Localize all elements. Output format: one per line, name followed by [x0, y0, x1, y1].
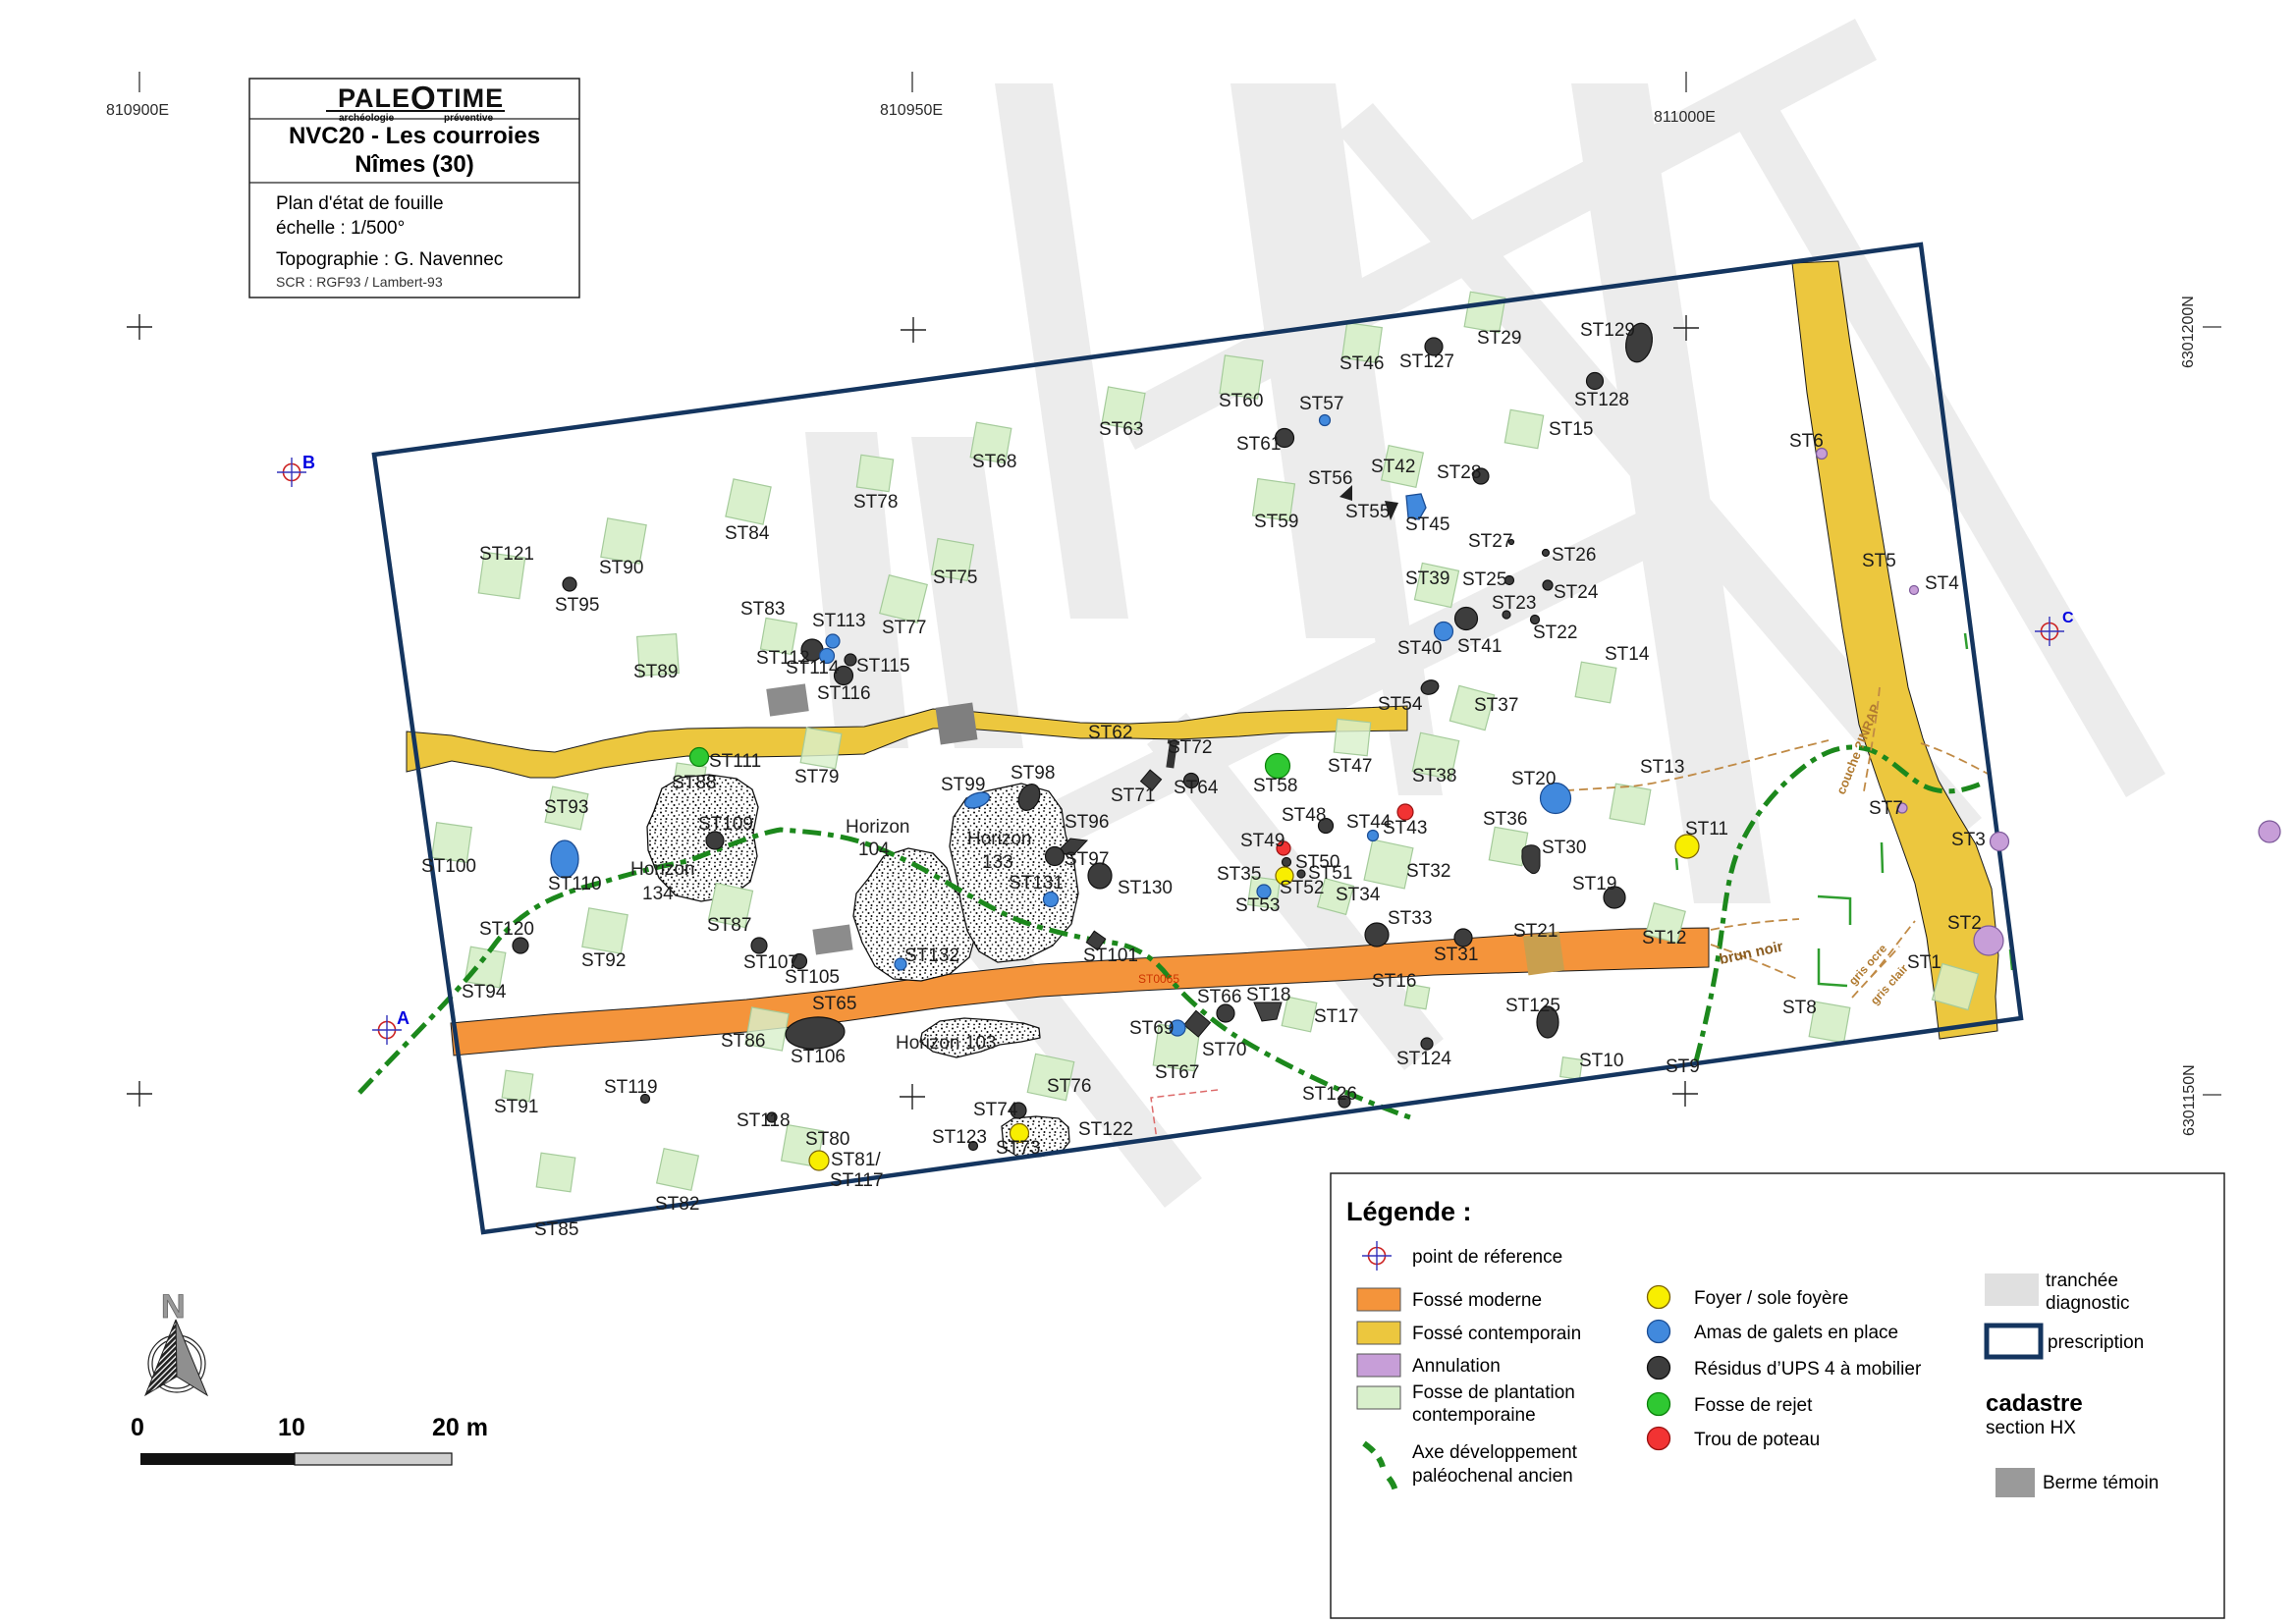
svg-text:ST9: ST9 [1666, 1056, 1700, 1077]
svg-text:ST86: ST86 [721, 1031, 765, 1052]
svg-text:ST25: ST25 [1462, 569, 1506, 590]
svg-text:Topographie : G. Navennec: Topographie : G. Navennec [276, 249, 503, 270]
svg-text:paléochenal ancien: paléochenal ancien [1412, 1466, 1573, 1487]
svg-text:ST46: ST46 [1339, 353, 1384, 374]
svg-text:ST116: ST116 [817, 683, 871, 704]
svg-text:ST30: ST30 [1542, 838, 1586, 858]
svg-text:ST29: ST29 [1477, 328, 1521, 349]
svg-text:ST45: ST45 [1405, 514, 1449, 535]
svg-text:ST113: ST113 [812, 611, 866, 631]
svg-text:Fosse de rejet: Fosse de rejet [1694, 1395, 1813, 1416]
svg-text:Horizon: Horizon [630, 859, 694, 880]
svg-text:ST92: ST92 [581, 950, 626, 971]
svg-text:Annulation: Annulation [1412, 1356, 1501, 1377]
svg-text:ST13: ST13 [1640, 757, 1684, 778]
svg-text:ST129: ST129 [1580, 320, 1635, 341]
svg-text:ST26: ST26 [1552, 545, 1596, 566]
svg-text:ST115: ST115 [856, 656, 910, 677]
svg-text:ST10: ST10 [1579, 1051, 1623, 1071]
svg-text:ST15: ST15 [1549, 419, 1593, 440]
svg-text:tranchée: tranchée [2046, 1271, 2118, 1291]
svg-text:10: 10 [278, 1414, 305, 1441]
svg-text:section HX: section HX [1986, 1418, 2076, 1438]
svg-text:ST42: ST42 [1371, 457, 1415, 477]
svg-text:ST69: ST69 [1129, 1018, 1174, 1039]
svg-text:Amas de galets en place: Amas de galets en place [1694, 1323, 1898, 1343]
svg-text:ST120: ST120 [479, 919, 534, 940]
svg-text:ST122: ST122 [1078, 1119, 1133, 1140]
svg-text:ST52: ST52 [1280, 878, 1324, 898]
svg-text:ST118: ST118 [737, 1110, 791, 1131]
svg-text:Foyer / sole foyère: Foyer / sole foyère [1694, 1288, 1848, 1309]
svg-text:ST27: ST27 [1468, 531, 1512, 552]
svg-text:ST80: ST80 [805, 1129, 849, 1150]
svg-text:ST4: ST4 [1925, 573, 1959, 594]
svg-text:ST117: ST117 [830, 1170, 884, 1191]
svg-text:ST84: ST84 [725, 523, 770, 544]
svg-text:ST94: ST94 [462, 982, 507, 1002]
svg-text:échelle : 1/500°: échelle : 1/500° [276, 218, 405, 239]
svg-text:ST105: ST105 [785, 967, 840, 988]
svg-text:ST60: ST60 [1219, 391, 1263, 411]
svg-text:ST2: ST2 [1947, 913, 1982, 934]
svg-text:ST23: ST23 [1492, 593, 1536, 614]
svg-text:ST106: ST106 [791, 1047, 846, 1067]
svg-text:ST76: ST76 [1047, 1076, 1091, 1097]
svg-text:ST37: ST37 [1474, 695, 1518, 716]
svg-text:ST17: ST17 [1314, 1006, 1358, 1027]
svg-text:ST109: ST109 [698, 814, 753, 835]
svg-text:A: A [397, 1008, 410, 1028]
svg-text:ST64: ST64 [1174, 778, 1219, 798]
svg-text:ST47: ST47 [1328, 756, 1372, 777]
svg-text:Fosse de plantation: Fosse de plantation [1412, 1382, 1575, 1403]
svg-text:ST79: ST79 [794, 767, 839, 787]
svg-text:6301150N: 6301150N [2181, 1064, 2198, 1136]
svg-text:ST35: ST35 [1217, 864, 1261, 885]
svg-text:prescription: prescription [2048, 1332, 2144, 1353]
svg-text:6301200N: 6301200N [2180, 296, 2197, 368]
svg-text:Berme témoin: Berme témoin [2043, 1473, 2159, 1493]
svg-text:ST66: ST66 [1197, 987, 1241, 1007]
svg-text:ST71: ST71 [1111, 785, 1155, 806]
svg-text:Résidus d’UPS 4 à mobilier: Résidus d’UPS 4 à mobilier [1694, 1359, 1922, 1380]
svg-text:ST91: ST91 [494, 1097, 538, 1117]
svg-text:811000E: 811000E [1654, 109, 1716, 126]
svg-text:ST12: ST12 [1642, 928, 1686, 948]
svg-text:Horizon: Horizon [967, 829, 1031, 849]
svg-text:ST31: ST31 [1434, 945, 1478, 965]
svg-text:Trou de poteau: Trou de poteau [1694, 1430, 1820, 1450]
svg-text:0: 0 [131, 1414, 144, 1441]
svg-text:ST130: ST130 [1118, 878, 1173, 898]
svg-text:ST95: ST95 [555, 595, 599, 616]
svg-text:Horizon 103: Horizon 103 [896, 1033, 996, 1054]
svg-text:810900E: 810900E [106, 102, 169, 119]
svg-text:ST48: ST48 [1282, 805, 1326, 826]
svg-text:ST83: ST83 [740, 599, 785, 620]
svg-text:ST67: ST67 [1155, 1062, 1199, 1083]
svg-text:ST6: ST6 [1789, 431, 1824, 452]
svg-text:ST90: ST90 [599, 558, 643, 578]
svg-text:ST38: ST38 [1412, 766, 1456, 786]
svg-text:B: B [302, 453, 315, 472]
svg-text:ST40: ST40 [1397, 638, 1442, 659]
svg-text:ST1: ST1 [1907, 952, 1941, 973]
svg-text:ST33: ST33 [1388, 908, 1432, 929]
svg-text:Axe développement: Axe développement [1412, 1442, 1578, 1463]
svg-text:cadastre: cadastre [1986, 1390, 2083, 1417]
svg-text:ST39: ST39 [1405, 568, 1449, 589]
svg-text:ST96: ST96 [1065, 812, 1109, 833]
svg-text:ST131: ST131 [1009, 873, 1064, 893]
svg-text:ST59: ST59 [1254, 512, 1298, 532]
svg-text:ST56: ST56 [1308, 468, 1352, 489]
svg-text:ST0065: ST0065 [1138, 972, 1179, 986]
svg-text:ST49: ST49 [1240, 831, 1285, 851]
svg-text:ST61: ST61 [1236, 434, 1281, 455]
svg-text:104: 104 [858, 839, 890, 860]
svg-text:ST32: ST32 [1406, 861, 1450, 882]
svg-text:ST81/: ST81/ [831, 1150, 881, 1170]
svg-text:ST55: ST55 [1345, 502, 1390, 522]
svg-text:ST119: ST119 [604, 1077, 658, 1098]
svg-text:ST11: ST11 [1685, 819, 1728, 839]
svg-text:ST121: ST121 [479, 544, 534, 565]
svg-text:ST128: ST128 [1574, 390, 1629, 410]
svg-text:ST5: ST5 [1862, 551, 1896, 571]
svg-text:diagnostic: diagnostic [2046, 1293, 2130, 1314]
svg-text:SCR : RGF93 / Lambert-93: SCR : RGF93 / Lambert-93 [276, 274, 443, 290]
svg-text:ST28: ST28 [1437, 462, 1481, 483]
svg-text:contemporaine: contemporaine [1412, 1405, 1536, 1426]
svg-text:ST7: ST7 [1869, 798, 1903, 819]
svg-text:ST97: ST97 [1065, 849, 1109, 870]
svg-text:N: N [161, 1288, 186, 1326]
svg-text:ST124: ST124 [1396, 1049, 1451, 1069]
svg-text:ST82: ST82 [655, 1194, 699, 1215]
svg-text:ST57: ST57 [1299, 394, 1343, 414]
svg-text:ST53: ST53 [1235, 895, 1280, 916]
svg-text:ST125: ST125 [1505, 996, 1560, 1016]
svg-text:ST70: ST70 [1202, 1040, 1246, 1060]
svg-text:ST72: ST72 [1168, 737, 1212, 758]
svg-text:ST68: ST68 [972, 452, 1016, 472]
svg-text:ST34: ST34 [1336, 885, 1381, 905]
svg-text:ST127: ST127 [1399, 352, 1454, 372]
svg-text:ST93: ST93 [544, 797, 588, 818]
svg-text:ST8: ST8 [1782, 998, 1817, 1018]
svg-text:ST89: ST89 [633, 662, 678, 682]
svg-text:ST98: ST98 [1011, 763, 1055, 784]
svg-text:NVC20 - Les courroies: NVC20 - Les courroies [289, 123, 540, 149]
svg-text:ST58: ST58 [1253, 776, 1297, 796]
svg-text:ST36: ST36 [1483, 809, 1527, 830]
svg-text:Fossé contemporain: Fossé contemporain [1412, 1324, 1581, 1344]
svg-text:ST75: ST75 [933, 568, 977, 588]
svg-text:ST99: ST99 [941, 775, 985, 795]
svg-text:Horizon: Horizon [846, 817, 909, 838]
svg-text:ST54: ST54 [1378, 694, 1423, 715]
svg-text:ST123: ST123 [932, 1127, 987, 1148]
svg-text:point de réference: point de réference [1412, 1247, 1562, 1268]
svg-text:ST126: ST126 [1302, 1084, 1357, 1105]
svg-text:Plan d'état de fouille: Plan d'état de fouille [276, 193, 444, 214]
svg-text:ST73: ST73 [996, 1138, 1040, 1159]
svg-text:ST14: ST14 [1605, 644, 1650, 665]
svg-text:ST88: ST88 [672, 773, 716, 793]
svg-text:ST74: ST74 [973, 1100, 1018, 1120]
svg-text:134: 134 [642, 884, 674, 904]
svg-text:ST21: ST21 [1513, 921, 1558, 942]
svg-text:ST22: ST22 [1533, 623, 1577, 643]
svg-text:ST43: ST43 [1383, 818, 1427, 839]
svg-text:ST20: ST20 [1511, 769, 1556, 789]
svg-text:ST100: ST100 [421, 856, 476, 877]
svg-text:Légende :: Légende : [1346, 1197, 1472, 1226]
svg-text:ST114: ST114 [786, 658, 840, 678]
svg-text:ST78: ST78 [853, 492, 898, 513]
svg-text:Fossé moderne: Fossé moderne [1412, 1290, 1542, 1311]
svg-text:ST87: ST87 [707, 915, 751, 936]
svg-text:810950E: 810950E [880, 102, 943, 119]
svg-text:C: C [2062, 610, 2074, 626]
svg-text:ST3: ST3 [1951, 830, 1986, 850]
svg-text:ST132: ST132 [904, 946, 959, 966]
svg-text:20 m: 20 m [432, 1414, 488, 1441]
svg-text:ST41: ST41 [1457, 636, 1502, 657]
svg-text:ST19: ST19 [1572, 874, 1616, 894]
svg-text:ST18: ST18 [1246, 985, 1290, 1005]
svg-text:133: 133 [982, 852, 1013, 873]
svg-text:ST16: ST16 [1372, 971, 1416, 992]
svg-text:ST77: ST77 [882, 618, 926, 638]
svg-text:ST111: ST111 [709, 751, 761, 772]
svg-text:ST101: ST101 [1083, 946, 1138, 966]
svg-text:ST85: ST85 [534, 1219, 578, 1240]
svg-text:ST24: ST24 [1554, 582, 1599, 603]
svg-text:ST110: ST110 [548, 874, 602, 894]
svg-text:ST65: ST65 [812, 994, 856, 1014]
svg-text:Nîmes (30): Nîmes (30) [355, 151, 473, 178]
svg-text:ST63: ST63 [1099, 419, 1143, 440]
svg-text:ST62: ST62 [1088, 723, 1132, 743]
